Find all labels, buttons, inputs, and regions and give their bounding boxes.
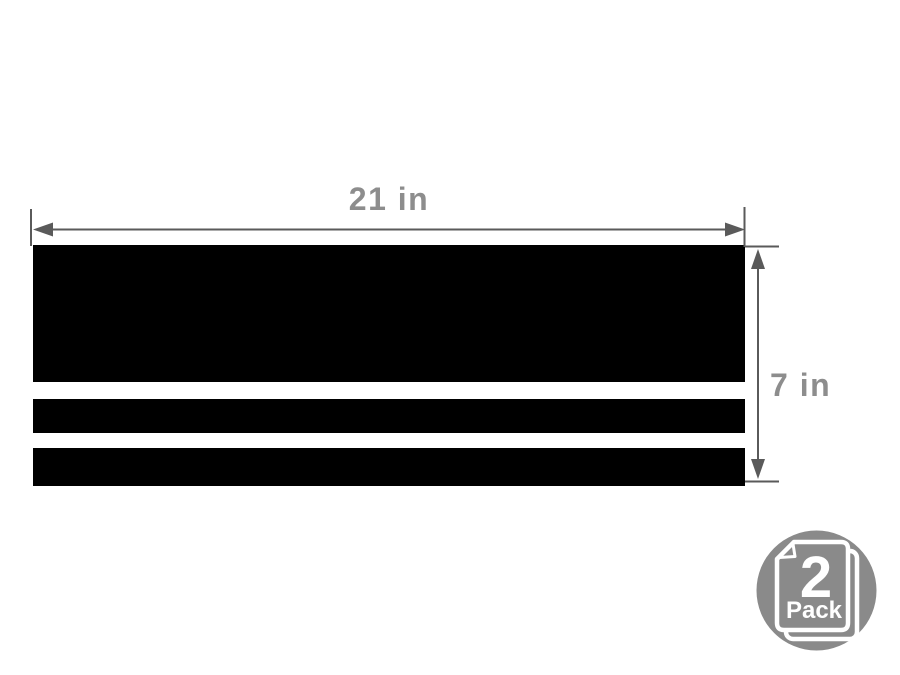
badge-unit-label: Pack [786, 597, 843, 624]
product-image: 21 in 7 in 2 Pack [0, 0, 900, 675]
arrowhead-right-icon [725, 223, 745, 237]
stripe-bottom [33, 448, 745, 486]
height-dimension-label: 7 in [770, 367, 831, 404]
arrowhead-up-icon [751, 249, 765, 269]
stripe-middle [33, 399, 745, 433]
pack-badge: 2 Pack [754, 528, 879, 653]
arrowhead-down-icon [751, 459, 765, 479]
stripe-top [33, 245, 745, 382]
height-dimension [745, 247, 779, 482]
arrowhead-left-icon [33, 223, 53, 237]
width-dimension-label: 21 in [33, 181, 745, 218]
